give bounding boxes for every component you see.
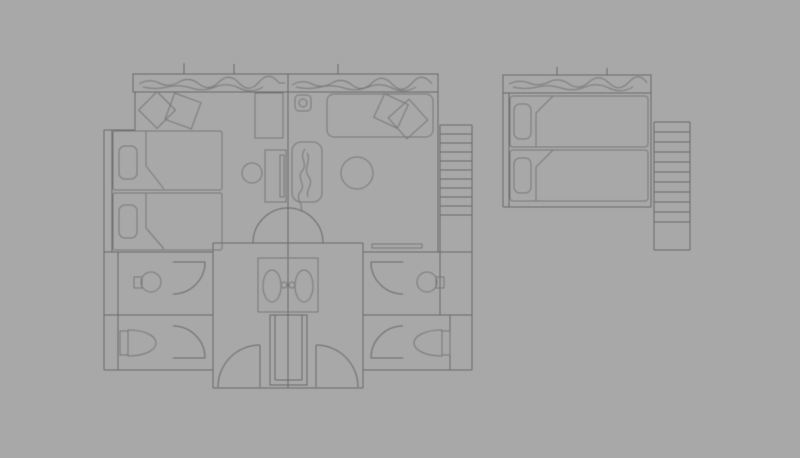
cushion bbox=[139, 92, 176, 129]
plant bbox=[298, 149, 310, 212]
pillow bbox=[119, 146, 137, 179]
round-table bbox=[341, 157, 373, 189]
pedestal-sink bbox=[141, 272, 161, 292]
window-band-outline bbox=[133, 74, 438, 92]
wc-door-arc-right bbox=[371, 326, 403, 358]
sofa-bed bbox=[327, 94, 433, 137]
bed bbox=[113, 193, 222, 250]
secondary-twin-bedroom-plan bbox=[503, 67, 690, 250]
pedestal-sink bbox=[417, 272, 437, 292]
faucet bbox=[281, 282, 287, 288]
toilet-bowl bbox=[414, 330, 442, 356]
pillow bbox=[514, 158, 531, 193]
blanket-fold bbox=[536, 96, 553, 113]
toilet-tank bbox=[442, 331, 450, 355]
door-sill bbox=[372, 244, 422, 248]
blanket-fold bbox=[146, 228, 164, 249]
entry-door-arc-right bbox=[316, 345, 358, 387]
stool bbox=[242, 163, 262, 183]
floor-plan-drawing bbox=[0, 0, 800, 458]
blanket-fold bbox=[146, 166, 164, 189]
wc-door-arc-left bbox=[173, 326, 205, 358]
lamp bbox=[299, 99, 307, 107]
toilet-bowl bbox=[128, 330, 156, 356]
washbasin bbox=[263, 270, 281, 302]
cushion bbox=[165, 93, 201, 129]
cushion bbox=[374, 94, 409, 129]
side-table bbox=[295, 95, 311, 111]
wardrobe bbox=[255, 93, 283, 138]
washbasin bbox=[295, 270, 313, 302]
shower-door-arc-right bbox=[371, 262, 403, 294]
floor-plan-canvas bbox=[0, 0, 800, 458]
main-guestroom-plan bbox=[104, 63, 472, 388]
pillow bbox=[514, 104, 531, 139]
blanket-fold bbox=[536, 150, 553, 167]
faucet bbox=[289, 282, 295, 288]
bed bbox=[113, 131, 222, 190]
curtain-squiggle bbox=[509, 77, 647, 88]
tv bbox=[280, 155, 284, 197]
pillow bbox=[119, 205, 137, 238]
window-band-outline bbox=[503, 75, 651, 93]
tv-cabinet bbox=[265, 150, 286, 202]
shower-door-arc-left bbox=[173, 262, 205, 294]
curtain-squiggle bbox=[139, 76, 285, 88]
entry-door-arc-left bbox=[218, 345, 260, 387]
curtain-squiggle bbox=[292, 77, 432, 89]
toilet-tank bbox=[120, 331, 128, 355]
